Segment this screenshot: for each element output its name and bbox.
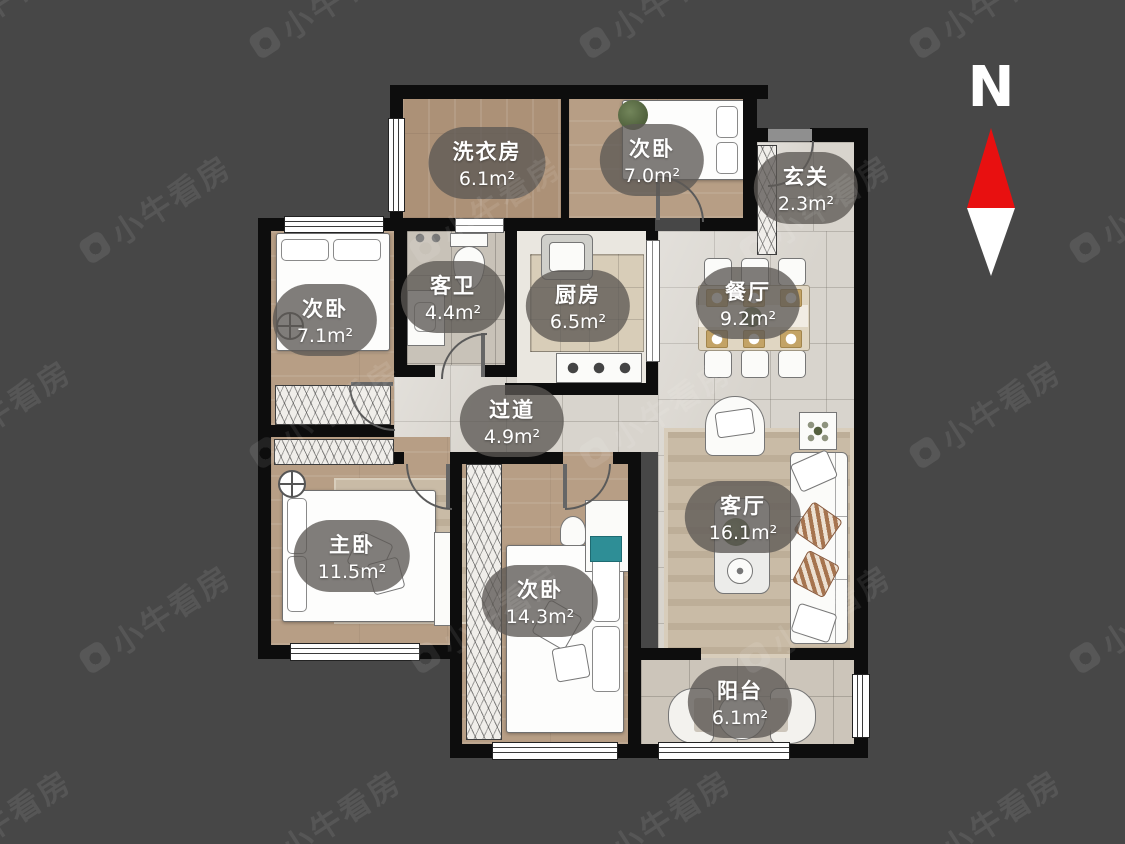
watermark: 小牛看房 bbox=[72, 552, 240, 683]
wall bbox=[646, 231, 658, 240]
watermark-text: 小牛看房 bbox=[0, 757, 79, 844]
stove bbox=[556, 353, 642, 383]
wall bbox=[641, 648, 701, 660]
watermark-text: 小牛看房 bbox=[0, 347, 79, 459]
toilet-tank bbox=[450, 233, 488, 247]
pillow bbox=[333, 239, 381, 261]
watermark-logo-icon bbox=[77, 229, 113, 265]
north-arrow-icon bbox=[967, 128, 1015, 278]
wardrobe bbox=[274, 439, 394, 465]
wall bbox=[394, 365, 435, 377]
watermark-text: 小牛看房 bbox=[931, 757, 1070, 844]
room-name: 过道 bbox=[489, 394, 535, 424]
watermark: 小牛看房 bbox=[242, 757, 410, 844]
room-area: 4.4m² bbox=[425, 302, 481, 324]
watermark-logo-icon bbox=[247, 24, 283, 60]
north-label: N bbox=[952, 60, 1030, 116]
room-name: 洗衣房 bbox=[453, 136, 522, 166]
watermark: 小牛看房 bbox=[902, 347, 1070, 478]
watermark: 小牛看房 bbox=[572, 757, 740, 844]
tray bbox=[727, 558, 753, 584]
room-area: 2.3m² bbox=[778, 193, 834, 215]
watermark: 小牛看房 bbox=[1062, 142, 1125, 273]
wall bbox=[390, 218, 455, 231]
room-area: 6.1m² bbox=[712, 707, 768, 729]
kitchen-sink bbox=[549, 242, 585, 272]
watermark-logo-icon bbox=[577, 24, 613, 60]
wall bbox=[561, 99, 569, 218]
room-area: 7.1m² bbox=[297, 325, 353, 347]
room-label-bedroom-left: 次卧 7.1m² bbox=[273, 284, 377, 356]
watermark-logo-icon bbox=[907, 24, 943, 60]
watermark-text: 小牛看房 bbox=[931, 0, 1070, 49]
room-name: 阳台 bbox=[717, 675, 763, 705]
room-area: 9.2m² bbox=[720, 308, 776, 330]
room-area: 6.5m² bbox=[550, 311, 606, 333]
room-area: 7.0m² bbox=[624, 165, 680, 187]
floorplan-canvas: 洗衣房 6.1m² 次卧 7.0m² 玄关 2.3m² 次卧 7.1m² 客卫 … bbox=[0, 0, 1125, 844]
room-name: 餐厅 bbox=[725, 276, 771, 306]
watermark-text: 小牛看房 bbox=[101, 552, 240, 664]
watermark-logo-icon bbox=[1067, 639, 1103, 675]
wall bbox=[505, 231, 517, 377]
wall bbox=[485, 365, 517, 377]
watermark: 小牛看房 bbox=[0, 0, 79, 68]
watermark-text: 小牛看房 bbox=[0, 0, 79, 49]
wall bbox=[790, 648, 854, 660]
watermark-logo-icon bbox=[77, 639, 113, 675]
laundry-sliding-door bbox=[455, 218, 504, 233]
dining-chair bbox=[741, 350, 769, 378]
wall bbox=[258, 218, 271, 659]
window bbox=[852, 674, 870, 738]
room-label-laundry: 洗衣房 6.1m² bbox=[429, 127, 546, 199]
room-area: 14.3m² bbox=[506, 606, 574, 628]
throw-pillow bbox=[551, 643, 590, 682]
watermark: 小牛看房 bbox=[902, 757, 1070, 844]
desk-monitor bbox=[590, 536, 622, 562]
room-name: 次卧 bbox=[302, 293, 348, 323]
room-name: 玄关 bbox=[783, 161, 829, 191]
room-name: 厨房 bbox=[555, 279, 601, 309]
wall bbox=[646, 360, 658, 395]
faucet-icons bbox=[412, 231, 446, 245]
wall bbox=[394, 452, 404, 464]
flower-planter bbox=[799, 412, 837, 450]
watermark-text: 小牛看房 bbox=[1091, 552, 1125, 664]
floor-unit-icon bbox=[278, 470, 306, 498]
watermark-text: 小牛看房 bbox=[601, 757, 740, 844]
wall bbox=[628, 452, 641, 758]
window bbox=[290, 643, 420, 661]
room-label-bedroom-top: 次卧 7.0m² bbox=[600, 124, 704, 196]
pillow bbox=[281, 239, 329, 261]
room-name: 次卧 bbox=[517, 574, 563, 604]
pillow bbox=[716, 142, 738, 174]
watermark: 小牛看房 bbox=[1062, 552, 1125, 683]
armchair-pillow bbox=[714, 407, 755, 438]
room-label-balcony: 阳台 6.1m² bbox=[688, 666, 792, 738]
watermark-logo-icon bbox=[907, 434, 943, 470]
room-label-entry: 玄关 2.3m² bbox=[754, 152, 858, 224]
room-name: 客卫 bbox=[430, 270, 476, 300]
kitchen-sliding-door bbox=[646, 240, 660, 362]
pillow bbox=[716, 106, 738, 138]
watermark-text: 小牛看房 bbox=[1091, 142, 1125, 254]
watermark: 小牛看房 bbox=[72, 142, 240, 273]
window bbox=[284, 216, 384, 233]
room-name: 主卧 bbox=[329, 529, 375, 559]
window bbox=[388, 118, 405, 212]
room-label-master-bedroom: 主卧 11.5m² bbox=[294, 520, 410, 592]
wall bbox=[502, 218, 655, 231]
watermark-logo-icon bbox=[1067, 229, 1103, 265]
wall bbox=[743, 99, 757, 231]
room-area: 6.1m² bbox=[459, 168, 515, 190]
room-label-living: 客厅 16.1m² bbox=[685, 481, 801, 553]
room-name: 客厅 bbox=[720, 490, 766, 520]
watermark-text: 小牛看房 bbox=[601, 0, 740, 49]
watermark-text: 小牛看房 bbox=[931, 347, 1070, 459]
wall bbox=[854, 128, 868, 758]
watermark-text: 小牛看房 bbox=[271, 0, 410, 49]
watermark: 小牛看房 bbox=[0, 347, 79, 478]
room-label-dining: 餐厅 9.2m² bbox=[696, 267, 800, 339]
watermark-text: 小牛看房 bbox=[271, 757, 410, 844]
window bbox=[492, 742, 618, 760]
wall bbox=[390, 85, 768, 99]
dining-chair bbox=[778, 350, 806, 378]
entry-door-leaf bbox=[768, 129, 812, 141]
desk-chair bbox=[560, 516, 586, 546]
dining-chair bbox=[704, 350, 732, 378]
room-label-bedroom-bottom: 次卧 14.3m² bbox=[482, 565, 598, 637]
watermark: 小牛看房 bbox=[572, 0, 740, 68]
room-label-hallway: 过道 4.9m² bbox=[460, 385, 564, 457]
watermark-text: 小牛看房 bbox=[101, 142, 240, 254]
room-name: 次卧 bbox=[629, 133, 675, 163]
room-label-kitchen: 厨房 6.5m² bbox=[526, 270, 630, 342]
watermark: 小牛看房 bbox=[0, 757, 79, 844]
compass: N bbox=[952, 60, 1030, 278]
window bbox=[658, 742, 790, 760]
room-area: 11.5m² bbox=[318, 561, 386, 583]
watermark: 小牛看房 bbox=[242, 0, 410, 68]
room-label-guest-bath: 客卫 4.4m² bbox=[401, 261, 505, 333]
room-area: 4.9m² bbox=[484, 426, 540, 448]
pillow bbox=[592, 556, 620, 622]
room-area: 16.1m² bbox=[709, 522, 777, 544]
pillow bbox=[592, 626, 620, 692]
